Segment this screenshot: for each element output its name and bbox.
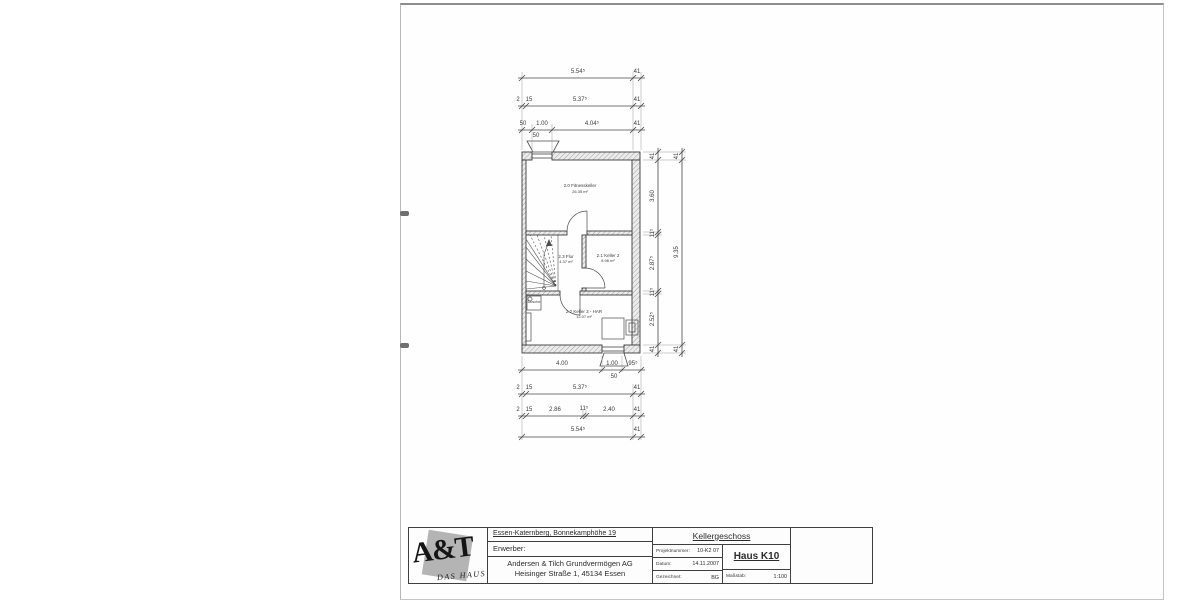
title-block-info: Kellergeschoss Projektnummer: 10-K2 07 D… [653,528,791,583]
windows [532,154,624,351]
drawing-title: Kellergeschoss [653,528,790,545]
site-address: Essen-Katernberg, Bonnekamphöhe 19 [488,528,652,542]
haus-number: Haus K10 [723,545,790,570]
project-fields: Projektnummer: 10-K2 07 Datum: 14.11.200… [653,545,723,583]
floor-plan-svg [0,0,1200,600]
field-massstab: Maßstab: 1:100 [723,570,790,583]
haus-column: Haus K10 Maßstab: 1:100 [723,545,790,583]
title-block-middle: Essen-Katernberg, Bonnekamphöhe 19 Erwer… [488,528,653,583]
company-address: Andersen & Tilch Grundvermögen AG Heisin… [488,557,652,579]
company-name: Andersen & Tilch Grundvermögen AG [488,559,652,569]
extension-lines [522,72,686,440]
field-projektnummer: Projektnummer: 10-K2 07 [653,545,722,558]
company-street: Heisinger Straße 1, 45134 Essen [488,569,652,579]
appliance-box [602,318,624,339]
title-block-empty-cell [791,528,872,583]
walls [522,152,640,353]
title-block: A&T DAS HAUS Essen-Katernberg, Bonnekamp… [408,527,873,584]
fixtures [526,296,638,341]
field-datum: Datum: 14.11.2007 [653,558,722,571]
field-gezeichnet: Gezeichnet: BG [653,571,722,584]
staircase [526,235,558,291]
dimension-lines [518,75,685,440]
service-fixture [526,313,531,341]
company-logo: A&T DAS HAUS [409,528,488,583]
erwerber-label: Erwerber: [488,542,652,557]
light-wells [527,141,628,366]
shower-fixture [527,296,541,310]
